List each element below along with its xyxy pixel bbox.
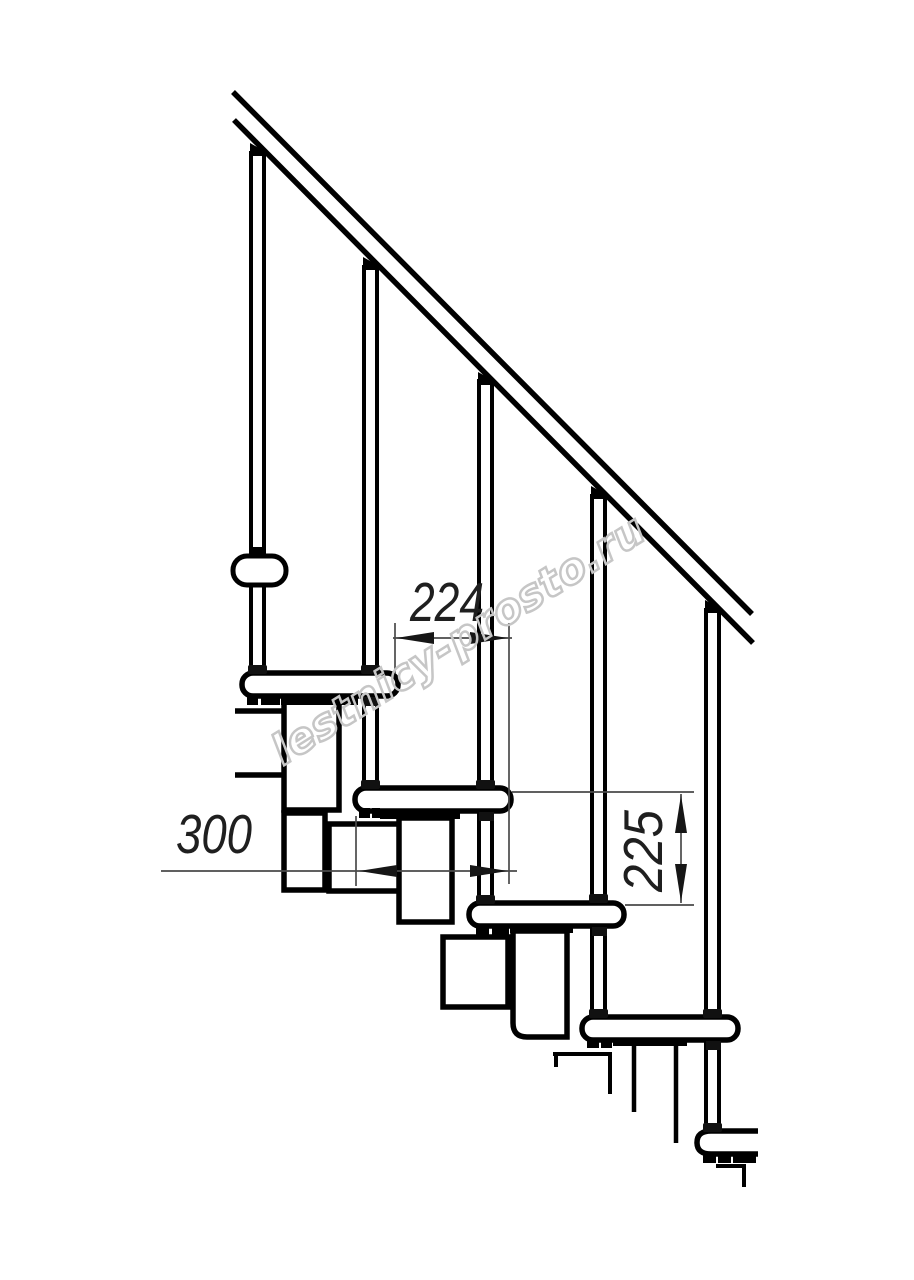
dim-label-rise: 225: [612, 810, 674, 893]
rod-nut: [706, 1041, 721, 1050]
rod-foot: [248, 665, 267, 674]
rod-foot: [476, 895, 495, 904]
mount-bar: [510, 924, 573, 933]
mount-bar: [733, 1153, 756, 1163]
module-box-e: [716, 1166, 744, 1187]
mount-bar: [613, 1038, 687, 1046]
rod-foot: [361, 780, 380, 789]
mount-clip: [372, 808, 380, 818]
module-box-b1: [329, 824, 403, 891]
baluster-rod-5: [706, 610, 719, 1134]
rod-collar: [476, 780, 495, 789]
rod-collar: [703, 1009, 722, 1018]
rod-nut: [592, 927, 607, 936]
mount-clip: [476, 925, 489, 935]
mount-clip: [247, 695, 258, 705]
mount-clip: [261, 695, 280, 705]
module-box-a2: [284, 813, 325, 890]
staircase-drawing: 224 300 225 lestnicy-prosto.ru: [0, 0, 914, 1280]
staircase-drawing-svg: 224 300 225 lestnicy-prosto.ru: [0, 0, 914, 1280]
tread-3: [469, 903, 624, 926]
tread-5: [697, 1131, 758, 1154]
bracket-body: [233, 556, 286, 585]
module-box-b2: [399, 818, 452, 922]
baluster-rod-1: [251, 153, 264, 676]
rod-collar: [589, 894, 608, 903]
module-box-c1: [443, 937, 508, 1007]
dim-label-depth: 300: [176, 803, 252, 865]
mount-clip: [601, 1039, 612, 1048]
tread-2: [355, 788, 511, 811]
rod-nut: [479, 812, 494, 821]
tread-4: [582, 1017, 738, 1040]
module-box-c2: [513, 931, 567, 1037]
rod-foot: [703, 1123, 722, 1132]
mount-bar: [380, 809, 460, 819]
arrow-225-down: [675, 864, 687, 902]
mount-clip: [703, 1154, 716, 1163]
mount-clip: [718, 1154, 731, 1163]
rod-foot: [589, 1009, 608, 1018]
module-box-d2: [634, 1042, 676, 1143]
mount-clip: [359, 808, 370, 818]
module-box-d1: [553, 1054, 612, 1094]
arrow-225-up: [675, 795, 687, 833]
mount-clip: [492, 925, 509, 935]
handrail-bracket: [233, 547, 286, 585]
mount-clip: [587, 1039, 599, 1048]
